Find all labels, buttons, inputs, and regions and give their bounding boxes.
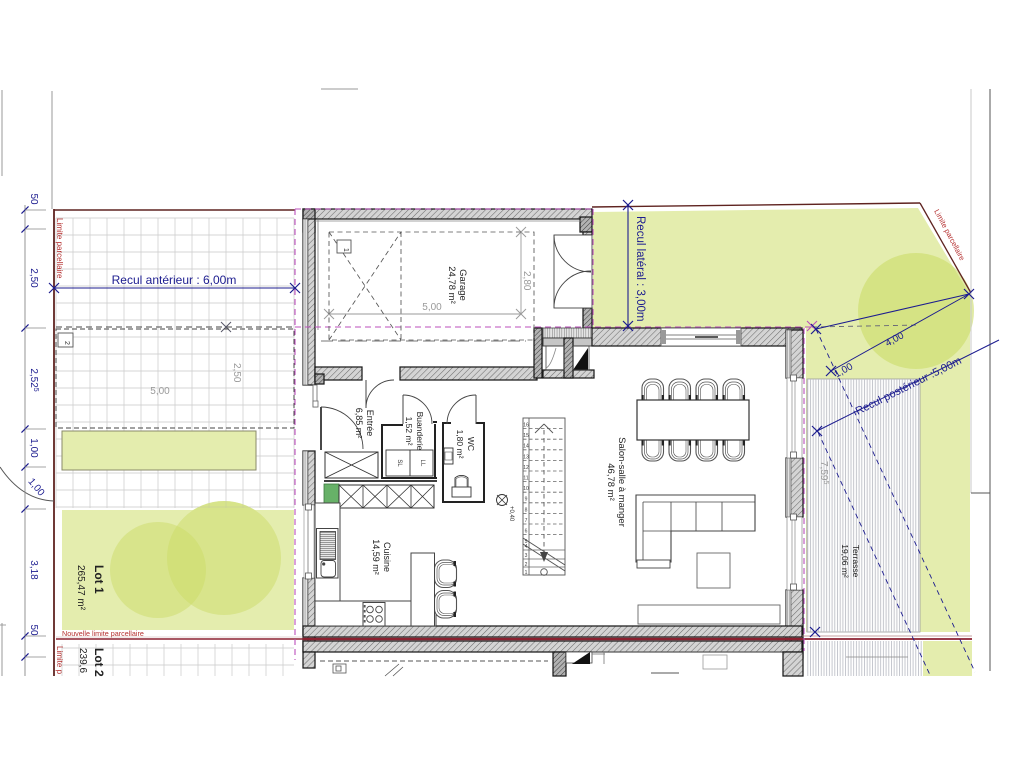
svg-text:11: 11 (523, 476, 528, 482)
svg-text:6,85 m²: 6,85 m² (354, 408, 364, 439)
svg-text:2: 2 (63, 341, 70, 345)
svg-text:7: 7 (525, 518, 528, 524)
svg-text:Lot 2: Lot 2 (92, 648, 106, 677)
svg-text:SL: SL (396, 459, 402, 467)
svg-text:46,78 m²: 46,78 m² (605, 463, 616, 501)
svg-text:1,00: 1,00 (28, 438, 39, 458)
svg-text:Recul latéral : 3,00m: Recul latéral : 3,00m (634, 216, 646, 321)
svg-text:Garage: Garage (457, 269, 468, 301)
svg-text:10: 10 (523, 486, 529, 492)
svg-text:4: 4 (525, 544, 528, 550)
svg-text:50: 50 (28, 624, 39, 636)
svg-text:5,00: 5,00 (150, 386, 170, 397)
svg-text:24,78 m²: 24,78 m² (446, 266, 457, 304)
svg-text:13: 13 (523, 454, 529, 460)
svg-text:Nouvelle limite parcellaire: Nouvelle limite parcellaire (62, 629, 144, 638)
svg-text:3,18: 3,18 (28, 560, 39, 580)
svg-text:9: 9 (525, 497, 528, 503)
svg-text:2,50: 2,50 (231, 363, 242, 383)
svg-text:14: 14 (523, 444, 529, 450)
svg-text:1: 1 (342, 248, 349, 252)
svg-text:3: 3 (525, 553, 528, 559)
svg-text:1,80 m²: 1,80 m² (455, 430, 465, 459)
svg-text:LL: LL (419, 460, 425, 467)
svg-text:1,52 m²: 1,52 m² (404, 417, 414, 446)
svg-text:2,50: 2,50 (28, 268, 39, 288)
svg-text:8: 8 (525, 507, 528, 513)
svg-text:239,6: 239,6 (77, 648, 88, 673)
svg-text:5,00: 5,00 (422, 302, 442, 313)
svg-text:265,47 m²: 265,47 m² (75, 565, 86, 611)
svg-text:Salon-salle à manger: Salon-salle à manger (616, 437, 627, 527)
svg-text:6: 6 (525, 529, 528, 535)
svg-text:Cuisine: Cuisine (382, 542, 392, 572)
svg-text:19,06 m²: 19,06 m² (840, 544, 850, 578)
svg-text:Terrasse: Terrasse (851, 545, 861, 578)
svg-text:2,80: 2,80 (521, 271, 532, 291)
svg-text:50: 50 (28, 193, 39, 205)
svg-text:Recul antérieur : 6,00m: Recul antérieur : 6,00m (112, 273, 237, 287)
svg-text:Lot 1: Lot 1 (92, 565, 106, 594)
svg-text:Entrée: Entrée (365, 410, 375, 437)
svg-text:Limite p: Limite p (55, 646, 64, 675)
svg-text:16: 16 (523, 423, 529, 429)
svg-text:1: 1 (525, 570, 528, 576)
svg-text:15: 15 (523, 433, 529, 439)
svg-text:14,59 m²: 14,59 m² (371, 539, 381, 575)
svg-text:Buanderie: Buanderie (415, 412, 425, 451)
svg-text:2: 2 (525, 562, 528, 568)
svg-text:12: 12 (523, 465, 529, 471)
svg-text:+0,40: +0,40 (508, 506, 514, 522)
svg-text:WC: WC (466, 437, 476, 451)
svg-text:Limite parcellaire: Limite parcellaire (55, 218, 64, 279)
